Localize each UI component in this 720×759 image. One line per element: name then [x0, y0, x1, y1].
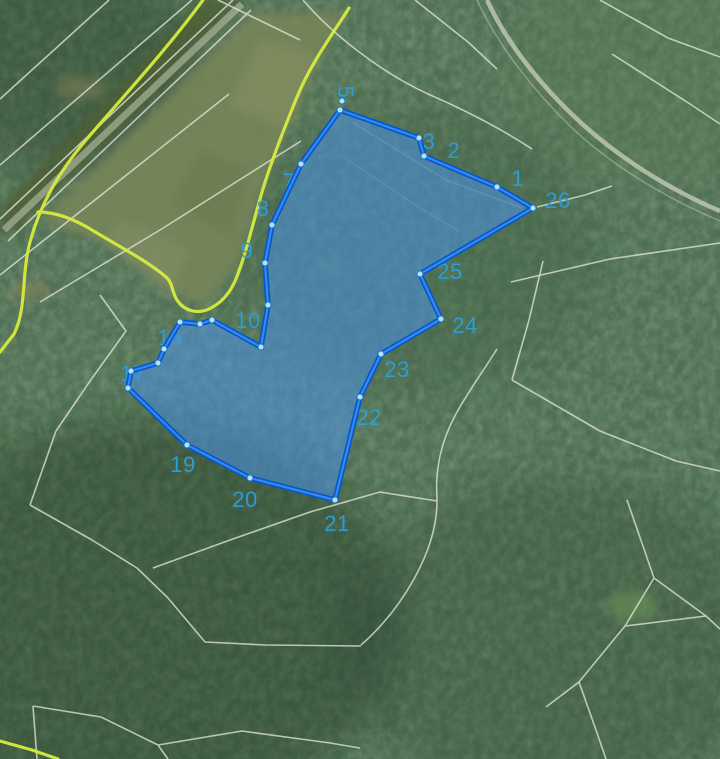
vertex-handle[interactable]: [332, 497, 338, 503]
vertex-label-20: 20: [232, 487, 257, 512]
vertex-handle[interactable]: [298, 161, 304, 167]
vertex-handle[interactable]: [494, 184, 500, 190]
vertex-handle[interactable]: [357, 394, 363, 400]
vertex-label-26: 26: [545, 188, 570, 213]
vertex-handle[interactable]: [530, 205, 536, 211]
vertex-handle[interactable]: [184, 442, 190, 448]
vertex-label-19: 19: [170, 452, 195, 477]
vertex-handle[interactable]: [125, 385, 131, 391]
vertex-handle[interactable]: [417, 271, 423, 277]
vertex-handle[interactable]: [337, 107, 343, 113]
vertex-handle[interactable]: [247, 475, 253, 481]
vertex-handle[interactable]: [378, 351, 384, 357]
vertex-label-9: 9: [241, 238, 254, 263]
vertex-handle[interactable]: [161, 346, 167, 352]
vertex-handle[interactable]: [128, 368, 134, 374]
vertex-label-2: 2: [448, 138, 461, 163]
vertex-label-5: 5: [333, 86, 358, 99]
vertex-label-10: 10: [235, 308, 260, 333]
vertex-handle[interactable]: [265, 302, 271, 308]
vertex-handle[interactable]: [177, 319, 183, 325]
satellite-map-canvas[interactable]: 12357891016171920212223242526: [0, 0, 720, 759]
map-viewport[interactable]: 12357891016171920212223242526: [0, 0, 720, 759]
vertex-label-22: 22: [356, 405, 381, 430]
vertex-label-1: 1: [512, 166, 525, 191]
vertex-handle[interactable]: [262, 260, 268, 266]
vertex-handle[interactable]: [416, 135, 422, 141]
vertex-handle[interactable]: [269, 222, 275, 228]
vertex-handle[interactable]: [258, 344, 264, 350]
vertex-label-8: 8: [257, 196, 270, 221]
vertex-label-23: 23: [384, 357, 409, 382]
vertex-handle[interactable]: [438, 316, 444, 322]
vertex-label-24: 24: [452, 313, 477, 338]
vertex-handle[interactable]: [421, 153, 427, 159]
vertex-handle[interactable]: [209, 317, 215, 323]
vertex-handle[interactable]: [155, 360, 161, 366]
vertex-label-21: 21: [324, 511, 349, 536]
vertex-handle[interactable]: [197, 321, 203, 327]
vertex-handle[interactable]: [339, 98, 345, 104]
